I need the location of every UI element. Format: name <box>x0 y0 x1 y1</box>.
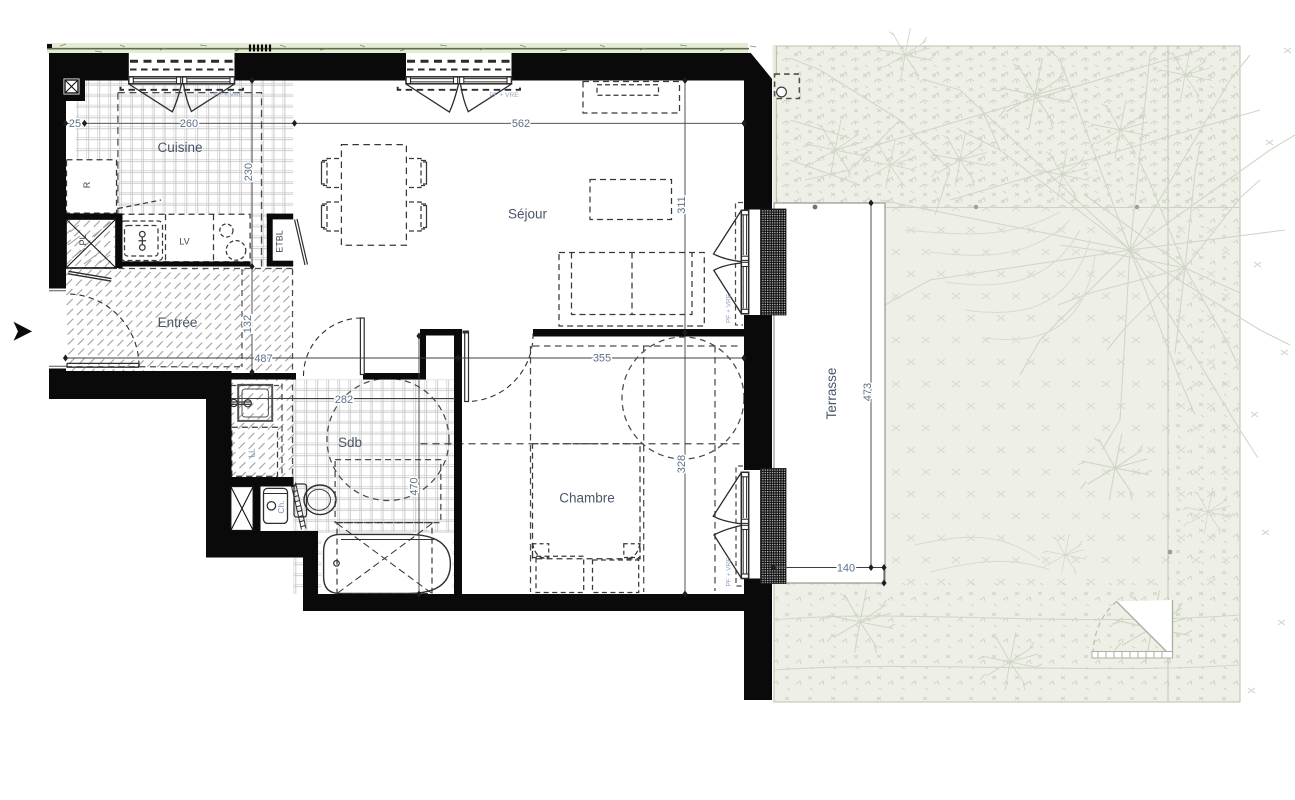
svg-text:470: 470 <box>409 477 421 495</box>
svg-text:ETBL: ETBL <box>275 230 285 253</box>
svg-text:Terrasse: Terrasse <box>824 368 839 420</box>
svg-text:PF + VRE: PF + VRE <box>726 293 733 323</box>
svg-text:PL: PL <box>78 234 88 245</box>
svg-text:140: 140 <box>837 562 855 574</box>
svg-text:PF + VRE: PF + VRE <box>489 92 519 99</box>
svg-text:Sdb: Sdb <box>338 435 362 450</box>
svg-text:Entrée: Entrée <box>158 315 198 330</box>
svg-text:Cuisine: Cuisine <box>157 140 202 155</box>
svg-text:R: R <box>82 181 92 188</box>
svg-text:Séjour: Séjour <box>508 207 548 222</box>
svg-text:230: 230 <box>243 163 255 181</box>
svg-text:132: 132 <box>242 315 254 333</box>
svg-text:473: 473 <box>862 383 874 401</box>
svg-text:311: 311 <box>676 196 688 214</box>
svg-text:487: 487 <box>254 353 272 365</box>
svg-text:25: 25 <box>69 118 81 130</box>
svg-text:Ch.: Ch. <box>276 500 286 513</box>
svg-text:282: 282 <box>335 394 353 406</box>
svg-text:355: 355 <box>593 353 611 365</box>
svg-text:LL: LL <box>247 448 257 458</box>
svg-text:260: 260 <box>180 118 198 130</box>
svg-text:PF + VRE: PF + VRE <box>214 92 244 99</box>
svg-text:328: 328 <box>676 455 688 473</box>
svg-text:PF + VRE: PF + VRE <box>726 557 733 587</box>
svg-text:Chambre: Chambre <box>559 491 615 506</box>
svg-text:562: 562 <box>512 118 530 130</box>
svg-text:LV: LV <box>179 237 189 247</box>
